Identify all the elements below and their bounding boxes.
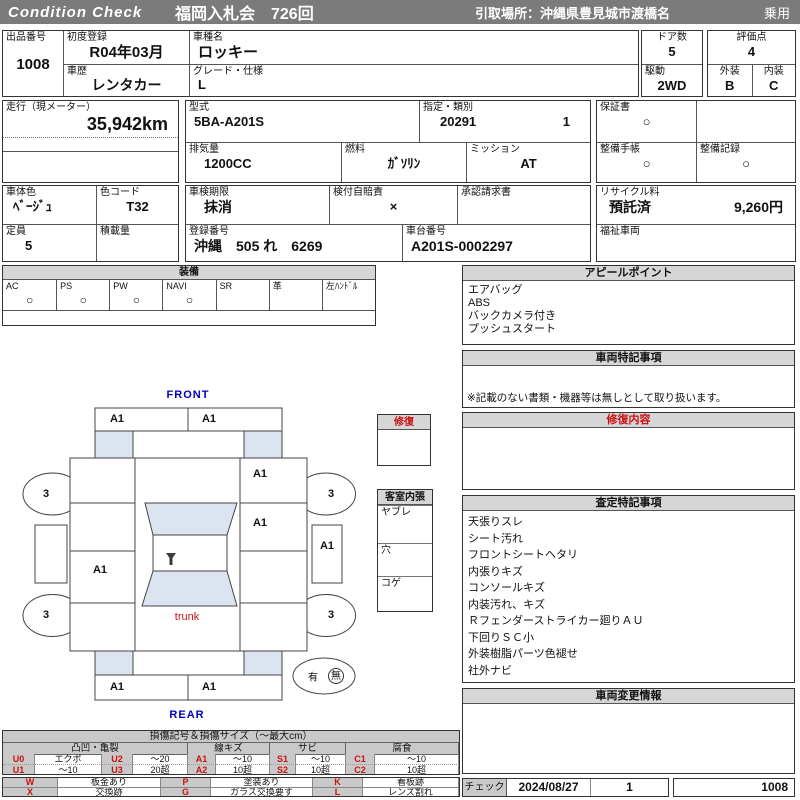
damage-mark-rear-bumper-left: A1 xyxy=(110,681,124,693)
payload-cell: 積載量 xyxy=(96,225,178,261)
vehicle-notes-title: 車両特記事項 xyxy=(463,351,794,366)
appeal-item: プッシュスタート xyxy=(468,323,789,336)
assessment-item: シート汚れ xyxy=(468,531,789,548)
legend-marks-row-1: W板金あり P塗装あり K看板跡 xyxy=(3,778,459,787)
equipment-cell-lhd: 左ﾊﾝﾄﾞﾙ xyxy=(322,280,375,310)
spare-tire-yes: 有 xyxy=(308,669,318,684)
chassis-value: A201S-0002297 xyxy=(403,239,590,254)
mileage-empty-row xyxy=(3,138,178,152)
doors-drive-table: ドア数 5 駆動 2WD xyxy=(641,30,703,97)
damage-diagram: FRONT REAR trunk A1 A1 A1 A1 A1 A1 A1 A1… xyxy=(15,388,365,740)
color-code-cell: 色コード T32 xyxy=(96,186,178,224)
repair-panel: 修復内容 xyxy=(462,412,795,490)
recycle-label: リサイクル料 xyxy=(597,186,795,200)
insurance-value: × xyxy=(330,200,457,214)
first-registration-cell: 初度登録 R04年03月 xyxy=(63,31,189,64)
equipment-cell-ac: AC○ xyxy=(3,280,56,310)
capacity-label: 定員 xyxy=(3,225,96,239)
roof xyxy=(153,535,227,571)
approval-label: 承認請求書 xyxy=(458,186,590,200)
pickup-location: 引取場所：沖縄県豊見城市渡橋名 xyxy=(475,3,764,22)
insurance-cell: 検付自賠責 × xyxy=(329,186,457,224)
maintenance-record-value: ○ xyxy=(697,157,795,171)
appeal-list: エアバッグ ABS バックカメラ付き プッシュスタート xyxy=(463,281,794,339)
maintenance-book-cell: 整備手帳 ○ xyxy=(597,143,696,182)
fuel-cell: 燃料 ｶﾞｿﾘﾝ xyxy=(341,143,466,182)
change-info-panel: 車両変更情報 xyxy=(462,688,795,774)
transmission-cell: ミッション AT xyxy=(466,143,590,182)
doors-label: ドア数 xyxy=(642,31,702,45)
recycle-cell: リサイクル料 預託済 9,260円 xyxy=(597,186,795,224)
history-value: レンタカー xyxy=(64,78,189,93)
history-label: 車歴 xyxy=(64,65,189,79)
score-table: 評価点 4 外装 B 内装 C xyxy=(707,30,796,97)
transmission-value: AT xyxy=(467,157,590,171)
mileage-table: 走行（現メーター） 35,942km xyxy=(2,100,179,183)
model-code-value: 5BA-A201S xyxy=(186,115,419,129)
drive-label: 駆動 xyxy=(642,65,702,79)
equipment-table: 装備 AC○ PS○ PW○ NAVI○ SR 革 左ﾊﾝﾄﾞﾙ xyxy=(2,265,376,326)
auction-condition-sheet: Condition Check 福岡入札会 726回 引取場所：沖縄県豊見城市渡… xyxy=(0,0,800,800)
color-code-label: 色コード xyxy=(97,186,178,200)
fuel-label: 燃料 xyxy=(342,143,466,157)
rear-pillar-left xyxy=(95,651,133,675)
repair-title: 修復内容 xyxy=(463,413,794,428)
appeal-item: バックカメラ付き xyxy=(468,310,789,323)
displacement-cell: 排気量 1200CC xyxy=(186,143,341,182)
legend-groups: 凸凹・亀裂 線キズ サビ 腐食 xyxy=(3,743,459,754)
brand-logo: Condition Check xyxy=(0,4,175,21)
payload-label: 積載量 xyxy=(97,225,178,239)
auction-title: 福岡入札会 726回 xyxy=(175,0,475,24)
interior-value: C xyxy=(753,79,796,93)
warranty-cell: 保証書 ○ xyxy=(597,101,696,142)
grade-cell: グレード・仕様 L xyxy=(189,64,638,97)
displacement-label: 排気量 xyxy=(186,143,341,157)
legend-row-1: U0エクボ U2～20 A1～10 S1～10 C1～10 xyxy=(3,754,459,764)
legend-marks-row-2: X交換跡 Gガラス交換要す Lレンズ割れ xyxy=(3,787,459,796)
rear-pillar-right xyxy=(244,651,282,675)
mileage-cell: 走行（現メーター） 35,942km xyxy=(3,101,178,138)
insurance-label: 検付自賠責 xyxy=(330,186,457,200)
registration-row-2: 登録番号 沖縄 505 れ 6269 車台番号 A201S-0002297 xyxy=(186,224,590,261)
check-lot-box: 1008 xyxy=(673,778,795,797)
recycle-values: 預託済 9,260円 xyxy=(597,200,795,215)
spare-tire-indicator xyxy=(293,658,355,694)
check-row: チェック 2024/08/27 1 xyxy=(462,778,669,797)
assessment-item: コンソールキズ xyxy=(468,580,789,597)
appeal-title: アピールポイント xyxy=(463,266,794,281)
assessment-title: 査定特記事項 xyxy=(463,496,794,511)
capacity-row: 定員 5 積載量 xyxy=(3,224,178,261)
exterior-interior-row: 外装 B 内装 C xyxy=(708,64,795,96)
legend-title: 損傷記号＆損傷サイズ（～最大cm） xyxy=(3,731,459,743)
welfare-label: 福祉車両 xyxy=(597,225,795,239)
vehicle-category: 乗用 xyxy=(764,3,800,22)
class-label: 指定・類別 xyxy=(420,101,590,115)
grade-value: L xyxy=(190,78,638,92)
equipment-cell-sr: SR xyxy=(216,280,269,310)
trunk-label: trunk xyxy=(175,611,199,623)
body-color-cell: 車体色 ﾍﾞｰｼﾞｭ xyxy=(3,186,96,224)
maintenance-book-label: 整備手帳 xyxy=(597,143,696,157)
class-values: 20291 1 xyxy=(420,115,590,129)
warranty-label: 保証書 xyxy=(597,101,696,115)
score-value: 4 xyxy=(708,45,795,59)
registration-row-1: 車検期限 抹消 検付自賠責 × 承認請求書 xyxy=(186,186,590,224)
plate-value: 沖縄 505 れ 6269 xyxy=(186,239,402,254)
maintenance-record-label: 整備記録 xyxy=(697,143,795,157)
assessment-item: 内張りキズ xyxy=(468,564,789,581)
spec-row-2: 排気量 1200CC 燃料 ｶﾞｿﾘﾝ ミッション AT xyxy=(186,142,590,182)
change-info-title: 車両変更情報 xyxy=(463,689,794,704)
maintenance-book-value: ○ xyxy=(597,157,696,171)
assessment-list: 天張りスレ シート汚れ フロントシートヘタリ 内張りキズ コンソールキズ 内装汚… xyxy=(463,511,794,682)
displacement-value: 1200CC xyxy=(186,157,341,171)
spare-tire-no-circled: 無 xyxy=(328,668,344,684)
front-label: FRONT xyxy=(167,389,210,401)
legend-row-2: U1～10 U320超 A210超 S210超 C210超 xyxy=(3,764,459,774)
model-name-cell: 車種名 ロッキー xyxy=(189,31,638,64)
inspection-value: 抹消 xyxy=(186,200,329,215)
cabin-row-burn: コゲ xyxy=(378,576,432,610)
plate-cell: 登録番号 沖縄 505 れ 6269 xyxy=(186,225,402,261)
assessment-item: 社外ナビ xyxy=(468,663,789,680)
check-date: 2024/08/27 xyxy=(507,779,591,796)
appeal-item: ABS xyxy=(468,297,789,310)
exterior-label: 外装 xyxy=(708,65,752,79)
equipment-empty-row xyxy=(3,310,375,325)
recycle-status: 預託済 xyxy=(609,200,651,215)
damage-mark-left-rear-door: A1 xyxy=(93,564,107,576)
inspection-cell: 車検期限 抹消 xyxy=(186,186,329,224)
damage-mark-wheel-front-left: 3 xyxy=(43,488,49,500)
fuel-value: ｶﾞｿﾘﾝ xyxy=(342,157,466,171)
header-bar: Condition Check 福岡入札会 726回 引取場所：沖縄県豊見城市渡… xyxy=(0,0,800,24)
damage-mark-wheel-front-right: 3 xyxy=(328,488,334,500)
model-name-label: 車種名 xyxy=(190,31,638,45)
color-row: 車体色 ﾍﾞｰｼﾞｭ 色コード T32 xyxy=(3,186,178,224)
cabin-box-title: 客室内張 xyxy=(378,490,432,505)
rear-window xyxy=(142,571,237,606)
equipment-cell-leather: 革 xyxy=(269,280,322,310)
appeal-item: エアバッグ xyxy=(468,284,789,297)
maintenance-record-cell: 整備記録 ○ xyxy=(696,143,795,182)
lot-number-value: 1008 xyxy=(3,57,63,74)
registration-table: 車検期限 抹消 検付自賠責 × 承認請求書 登録番号 沖縄 505 れ 6269… xyxy=(185,185,591,262)
check-count: 1 xyxy=(591,779,668,796)
mileage-value: 35,942km xyxy=(3,115,178,135)
chassis-label: 車台番号 xyxy=(403,225,590,239)
equipment-row: AC○ PS○ PW○ NAVI○ SR 革 左ﾊﾝﾄﾞﾙ xyxy=(3,280,375,310)
rear-label: REAR xyxy=(169,709,204,721)
chassis-cell: 車台番号 A201S-0002297 xyxy=(402,225,590,261)
interior-label: 内装 xyxy=(753,65,796,79)
exterior-cell: 外装 B xyxy=(708,65,752,96)
front-pillar-left xyxy=(95,431,133,458)
assessment-item: 下回りＳＣ小 xyxy=(468,630,789,647)
assessment-item: 天張りスレ xyxy=(468,514,789,531)
vehicle-notes-footnote: ※記載のない書類・機器等は無しとして取り扱います。 xyxy=(467,390,726,405)
windshield xyxy=(145,503,237,535)
color-code-value: T32 xyxy=(97,200,178,214)
damage-mark-front-bumper-left: A1 xyxy=(110,413,124,425)
equipment-title: 装備 xyxy=(3,266,375,280)
assessment-panel: 査定特記事項 天張りスレ シート汚れ フロントシートヘタリ 内張りキズ コンソー… xyxy=(462,495,795,683)
assessment-item: フロントシートヘタリ xyxy=(468,547,789,564)
repair-mini-box: 修復 xyxy=(377,414,431,466)
assessment-item: Ｒフェンダーストライカー廻りＡＵ xyxy=(468,613,789,630)
check-label: チェック xyxy=(463,779,507,796)
equipment-cell-pw: PW○ xyxy=(109,280,162,310)
capacity-cell: 定員 5 xyxy=(3,225,96,261)
lot-number-label: 出品番号 xyxy=(3,31,63,45)
warranty-value: ○ xyxy=(597,115,696,129)
body-color-value: ﾍﾞｰｼﾞｭ xyxy=(3,200,96,214)
inspection-label: 車検期限 xyxy=(186,186,329,200)
damage-mark-front-bumper-right: A1 xyxy=(202,413,216,425)
plate-label: 登録番号 xyxy=(186,225,402,239)
damage-mark-wheel-rear-left: 3 xyxy=(43,609,49,621)
class-cell: 指定・類別 20291 1 xyxy=(419,101,590,142)
equipment-cell-navi: NAVI○ xyxy=(162,280,215,310)
history-cell: 車歴 レンタカー xyxy=(63,64,189,97)
interior-cell: 内装 C xyxy=(752,65,796,96)
model-name-value: ロッキー xyxy=(190,45,638,62)
lot-number-cell: 出品番号 1008 xyxy=(3,31,63,96)
body-color-label: 車体色 xyxy=(3,186,96,200)
right-rocker-panel xyxy=(312,525,342,583)
assessment-item: 内装汚れ、キズ xyxy=(468,597,789,614)
front-pillar-right xyxy=(244,431,282,458)
recycle-fee: 9,260円 xyxy=(734,200,783,215)
mileage-label: 走行（現メーター） xyxy=(3,101,178,115)
car-schematic xyxy=(15,388,365,740)
recycle-table: リサイクル料 預託済 9,260円 福祉車両 xyxy=(596,185,796,262)
legend-table: 損傷記号＆損傷サイズ（～最大cm） 凸凹・亀裂 線キズ サビ 腐食 U0エクボ … xyxy=(2,730,460,775)
check-lot-number: 1008 xyxy=(674,779,794,796)
documents-empty-cell xyxy=(696,101,795,142)
repair-mini-title: 修復 xyxy=(378,415,430,430)
cabin-row-tear: ヤブレ xyxy=(378,505,432,543)
drive-cell: 駆動 2WD xyxy=(642,64,702,96)
vehicle-notes-panel: 車両特記事項 ※記載のない書類・機器等は無しとして取り扱います。 xyxy=(462,350,795,408)
equipment-cell-ps: PS○ xyxy=(56,280,109,310)
approval-cell: 承認請求書 xyxy=(457,186,590,224)
damage-mark-right-rocker: A1 xyxy=(320,540,334,552)
first-registration-value: R04年03月 xyxy=(64,45,189,62)
assessment-item: 外装樹脂パーツ色褪せ xyxy=(468,646,789,663)
model-code-label: 型式 xyxy=(186,101,419,115)
transmission-label: ミッション xyxy=(467,143,590,157)
doors-value: 5 xyxy=(642,45,702,59)
documents-row-1: 保証書 ○ xyxy=(597,101,795,142)
main-info-table: 出品番号 1008 初度登録 R04年03月 車種名 ロッキー 車歴 レンタカー… xyxy=(2,30,639,97)
welfare-cell: 福祉車両 xyxy=(597,224,795,261)
documents-table: 保証書 ○ 整備手帳 ○ 整備記録 ○ xyxy=(596,100,796,183)
class-sub-number: 1 xyxy=(563,115,570,129)
damage-mark-rear-bumper-right: A1 xyxy=(202,681,216,693)
spec-row-1: 型式 5BA-A201S 指定・類別 20291 1 xyxy=(186,101,590,142)
class-number: 20291 xyxy=(440,115,476,129)
damage-mark-wheel-rear-right: 3 xyxy=(328,609,334,621)
appeal-panel: アピールポイント エアバッグ ABS バックカメラ付き プッシュスタート xyxy=(462,265,795,345)
capacity-value: 5 xyxy=(3,239,96,253)
cabin-box: 客室内張 ヤブレ 穴 コゲ xyxy=(377,489,433,612)
model-code-cell: 型式 5BA-A201S xyxy=(186,101,419,142)
left-rocker-panel xyxy=(35,525,67,583)
spec-table: 型式 5BA-A201S 指定・類別 20291 1 排気量 1200CC 燃料… xyxy=(185,100,591,183)
damage-mark-right-front-fender: A1 xyxy=(253,468,267,480)
documents-row-2: 整備手帳 ○ 整備記録 ○ xyxy=(597,142,795,182)
color-capacity-table: 車体色 ﾍﾞｰｼﾞｭ 色コード T32 定員 5 積載量 xyxy=(2,185,179,262)
drive-value: 2WD xyxy=(642,79,702,93)
cabin-row-hole: 穴 xyxy=(378,543,432,576)
grade-label: グレード・仕様 xyxy=(190,65,638,79)
exterior-value: B xyxy=(708,79,752,93)
first-registration-label: 初度登録 xyxy=(64,31,189,45)
score-label: 評価点 xyxy=(708,31,795,45)
damage-mark-right-front-door: A1 xyxy=(253,517,267,529)
score-cell: 評価点 4 xyxy=(708,31,795,64)
doors-cell: ドア数 5 xyxy=(642,31,702,64)
legend-marks-table: W板金あり P塗装あり K看板跡 X交換跡 Gガラス交換要す Lレンズ割れ xyxy=(2,777,460,797)
